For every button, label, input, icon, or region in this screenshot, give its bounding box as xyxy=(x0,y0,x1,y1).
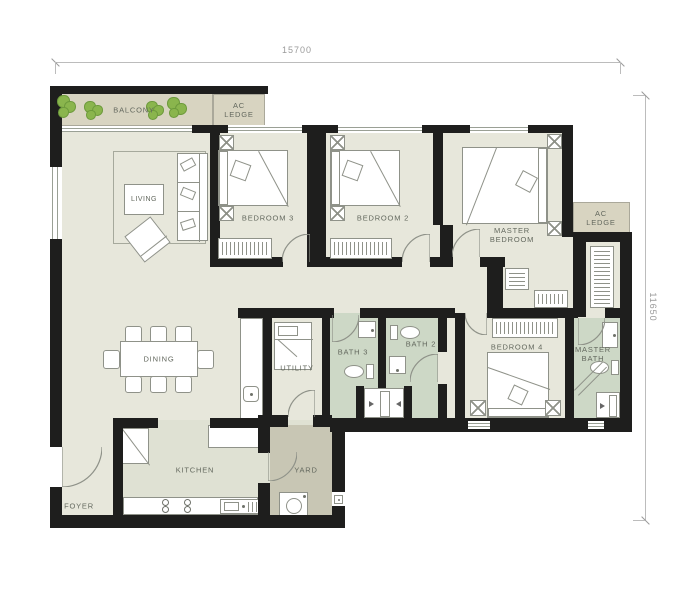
dining-chair xyxy=(197,350,214,369)
nightstand xyxy=(219,206,234,221)
room-label-living: LIVING xyxy=(131,195,157,204)
wardrobe-closet-a xyxy=(505,268,529,290)
dining-chair xyxy=(125,376,142,393)
wardrobe-closet-c xyxy=(590,246,614,308)
dining-chair xyxy=(103,350,120,369)
window xyxy=(468,421,490,429)
wall-segment xyxy=(356,386,364,418)
nightstand xyxy=(219,135,234,150)
door-master-bedroom xyxy=(452,229,480,257)
door-bedroom2 xyxy=(402,234,430,262)
sofa xyxy=(177,153,208,241)
door-bedroom4 xyxy=(465,313,487,335)
wall-segment xyxy=(258,483,270,517)
wall-segment xyxy=(438,313,447,352)
fridge xyxy=(122,428,149,464)
wall-segment xyxy=(50,239,62,447)
window xyxy=(470,125,528,133)
kitchen-counter-strip xyxy=(240,318,263,423)
window xyxy=(588,421,604,429)
nightstand xyxy=(547,134,562,149)
wall-segment xyxy=(210,418,263,428)
wall-segment xyxy=(573,232,632,242)
wall-segment xyxy=(430,257,440,267)
room-label-yard: YARD xyxy=(294,466,317,475)
wall-segment xyxy=(313,415,332,427)
window xyxy=(228,125,302,133)
room-label-bedroom3: BEDROOM 3 xyxy=(242,214,294,223)
door-entrance xyxy=(62,447,102,487)
dimension-width-label: 15700 xyxy=(282,45,312,55)
wall-segment xyxy=(433,125,443,225)
wall-segment xyxy=(565,313,574,418)
door-bath2 xyxy=(410,354,438,382)
wall-segment xyxy=(360,308,455,318)
wall-segment xyxy=(620,242,632,432)
dining-chair xyxy=(150,376,167,393)
room-label-master-bedroom: MASTER BEDROOM xyxy=(490,226,534,244)
counter-sink xyxy=(243,386,259,402)
bed-bedroom2 xyxy=(330,150,400,206)
room-label-balcony: BALCONY xyxy=(113,106,154,115)
room-label-bedroom2: BEDROOM 2 xyxy=(357,214,409,223)
door-yard xyxy=(268,452,297,481)
door-bedroom3 xyxy=(282,234,310,262)
service-shaft xyxy=(364,388,404,418)
living-label-box: LIVING xyxy=(124,184,164,215)
room-label-dining: DINING xyxy=(143,355,174,364)
wall-segment xyxy=(487,308,573,318)
window xyxy=(338,125,422,133)
meter-box xyxy=(334,495,343,504)
wall-segment xyxy=(378,313,386,388)
wall-segment xyxy=(113,418,158,428)
wall-segment xyxy=(258,425,270,453)
wardrobe-bedroom2 xyxy=(330,238,392,259)
door-utility xyxy=(288,390,315,417)
dimension-height-label: 11650 xyxy=(648,292,658,321)
wall-segment xyxy=(263,313,272,418)
dining-chair xyxy=(175,376,192,393)
nightstand xyxy=(470,400,486,416)
room-label-bath3: BATH 3 xyxy=(338,348,369,357)
room-label-bedroom4: BEDROOM 4 xyxy=(491,343,543,352)
floor-plan: LIVING xyxy=(0,0,691,600)
room-label-bath2: BATH 2 xyxy=(406,340,437,349)
service-shaft xyxy=(596,392,620,418)
door-bath3 xyxy=(332,315,359,342)
sliding-door xyxy=(62,126,192,132)
wall-segment xyxy=(605,308,632,318)
wall-segment xyxy=(113,420,123,520)
room-label-master-bath: MASTER BATH xyxy=(575,345,611,363)
bed-master xyxy=(462,147,548,224)
bath3-sink xyxy=(358,321,376,338)
room-label-ac-ledge-right: AC LEDGE xyxy=(586,209,615,227)
bath2-sink xyxy=(389,356,406,374)
wall-segment xyxy=(50,86,268,94)
bath2-toilet xyxy=(390,325,422,340)
wall-segment xyxy=(438,384,447,418)
room-label-foyer: FOYER xyxy=(64,502,94,511)
window xyxy=(48,167,62,239)
wall-segment xyxy=(562,125,573,237)
wall-segment xyxy=(404,386,412,418)
room-label-kitchen: KITCHEN xyxy=(176,466,215,475)
nightstand xyxy=(330,206,345,221)
wall-segment xyxy=(192,125,212,133)
wall-segment xyxy=(573,242,586,317)
kitchen-counter-top xyxy=(208,425,263,448)
wall-segment xyxy=(50,515,345,528)
room-label-utility: UTILITY xyxy=(280,364,314,373)
wall-segment xyxy=(322,313,330,418)
nightstand xyxy=(547,221,562,236)
nightstand xyxy=(545,400,561,416)
wardrobe-bedroom3 xyxy=(218,238,272,259)
kitchen-sink xyxy=(220,499,260,514)
room-label-ac-ledge-top: AC LEDGE xyxy=(224,101,253,119)
wall-segment xyxy=(455,313,465,418)
bed-bedroom4 xyxy=(487,352,549,418)
wardrobe-bedroom4 xyxy=(492,318,558,338)
wardrobe-closet-b xyxy=(534,290,568,308)
bed-bedroom3 xyxy=(218,150,288,206)
bath3-toilet xyxy=(344,364,376,379)
door-master-bath xyxy=(578,318,605,345)
wall-segment xyxy=(238,308,330,318)
nightstand xyxy=(330,135,345,150)
stove xyxy=(158,498,196,514)
